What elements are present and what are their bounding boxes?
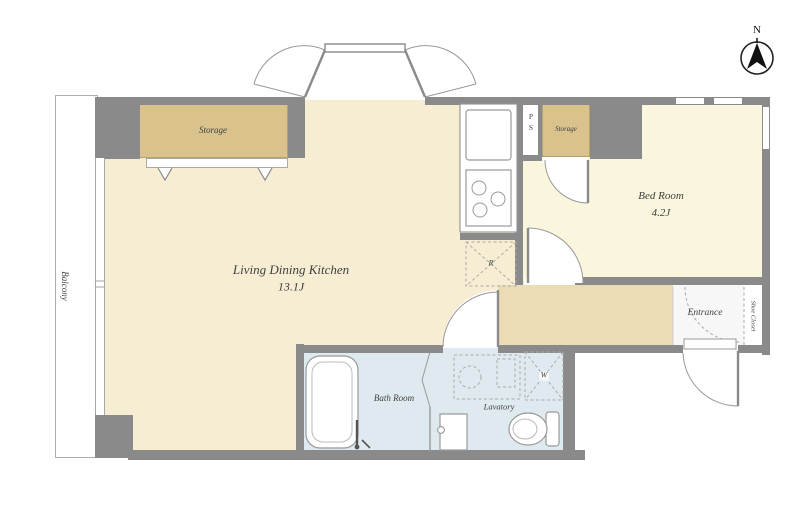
floor-plan: Living Dining Kitchen 13.1J Bed Room 4.2… bbox=[0, 0, 800, 512]
bedroom-door-swing bbox=[528, 228, 583, 283]
bedroom-label: Bed Room bbox=[638, 190, 684, 202]
shoe-closet-label: Shoe Closet bbox=[749, 301, 756, 332]
ldk-size-label: 13.1J bbox=[278, 280, 304, 293]
stove bbox=[466, 170, 511, 226]
bath-room-label: Bath Room bbox=[374, 394, 414, 404]
storage-living-label: Storage bbox=[199, 126, 227, 136]
kitchen-sink bbox=[466, 110, 511, 160]
pipe-space-label-p: P bbox=[529, 113, 533, 121]
fixtures-layer bbox=[0, 0, 800, 512]
hand-basin bbox=[438, 414, 467, 450]
north-compass-icon bbox=[741, 38, 773, 74]
window-ticks bbox=[95, 281, 105, 287]
bathtub bbox=[306, 356, 370, 449]
bath-folding-door bbox=[422, 352, 430, 452]
ldk-label: Living Dining Kitchen bbox=[233, 263, 349, 277]
entrance-label: Entrance bbox=[688, 308, 723, 318]
balcony-label: Balcony bbox=[59, 271, 69, 301]
front-door bbox=[683, 339, 738, 406]
lavatory-label: Lavatory bbox=[484, 402, 515, 411]
french-door bbox=[254, 44, 476, 97]
washing-machine-label: W bbox=[540, 372, 549, 381]
toilet bbox=[509, 412, 559, 446]
pipe-space-label-s: S bbox=[529, 124, 533, 132]
refrigerator-label: R bbox=[489, 260, 494, 269]
washstand-outline bbox=[454, 355, 520, 399]
kitchen-counter bbox=[460, 104, 517, 232]
north-label: N bbox=[753, 24, 761, 36]
storage-hall-label: Storage bbox=[555, 126, 577, 134]
bedroom-size-label: 4.2J bbox=[652, 207, 671, 219]
storage-door-swing bbox=[542, 157, 588, 203]
folding-door-marks bbox=[158, 168, 272, 180]
lavatory-door-swing bbox=[443, 290, 498, 347]
